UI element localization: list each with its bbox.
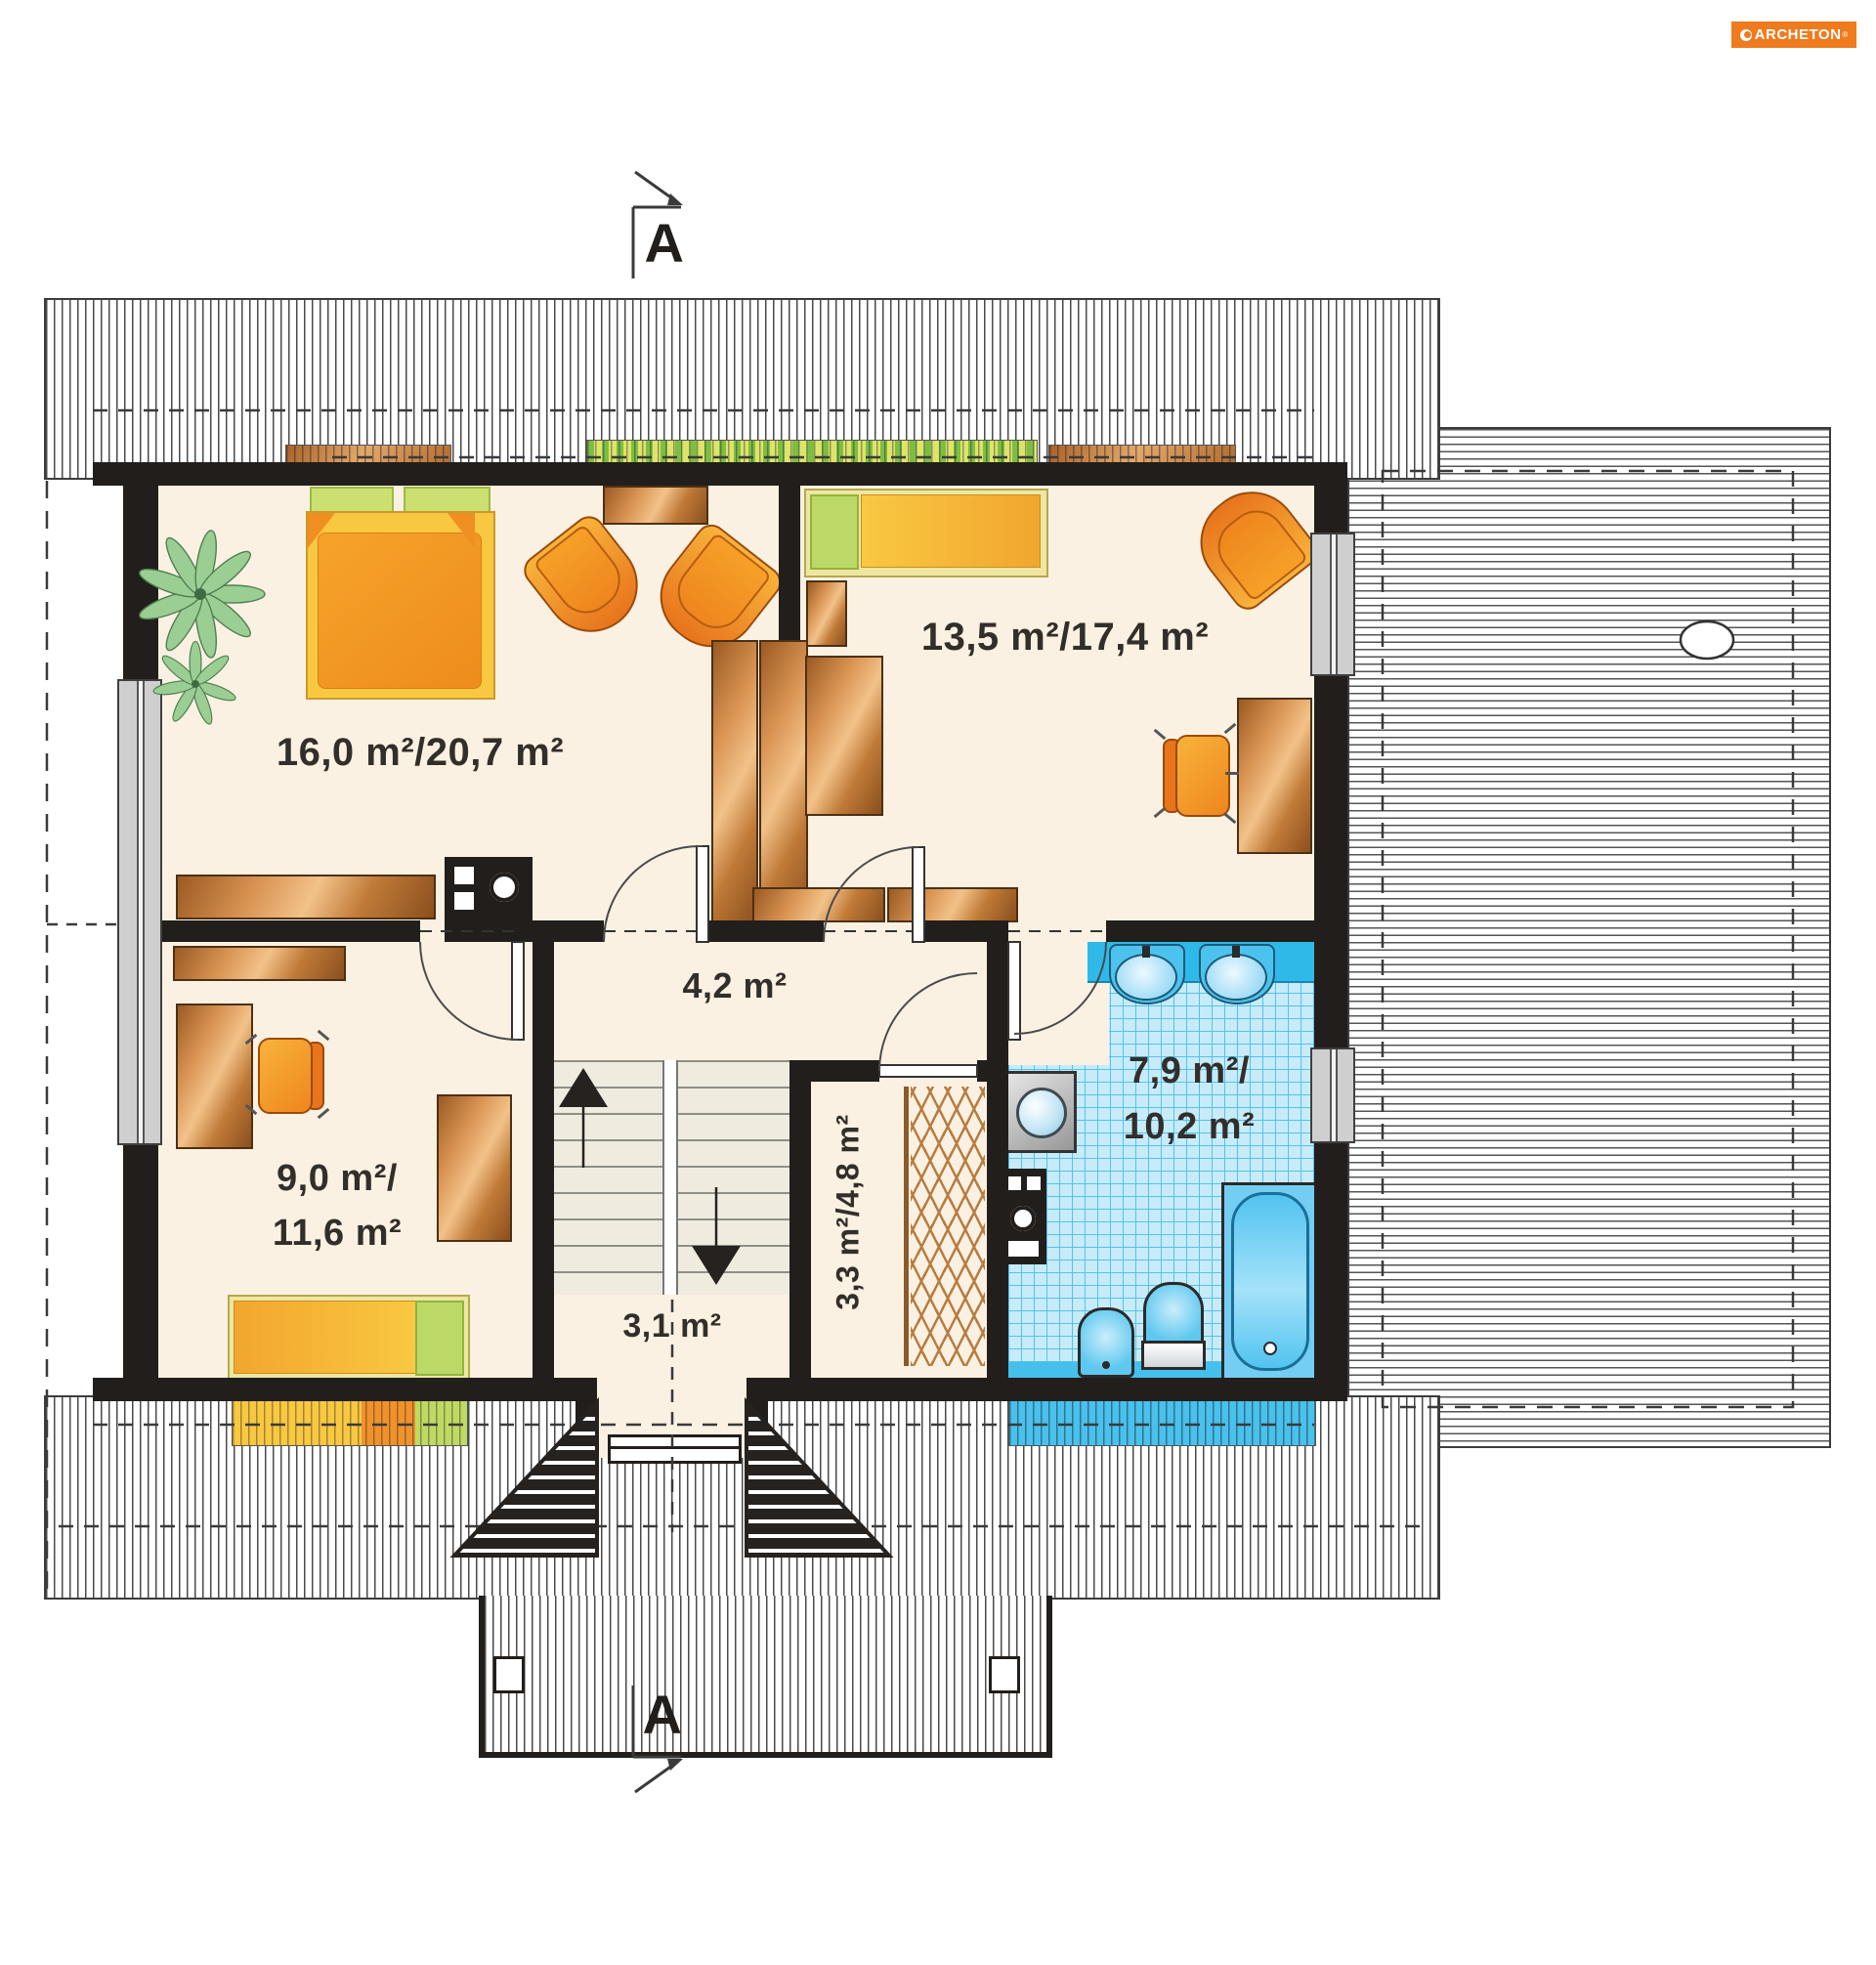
bidet-drain (1102, 1361, 1110, 1369)
shelf-large-bedroom (603, 486, 708, 525)
sink-right-basin (1205, 954, 1267, 1001)
area-label-bedroom-small-line2: 11,6 m² (234, 1206, 440, 1260)
archeton-logo-mark-icon (1740, 29, 1752, 41)
sink-left (1109, 944, 1185, 1004)
toilet-bowl (1143, 1282, 1204, 1346)
wall-closet-top-b (977, 1060, 987, 1082)
divider-cabinet-left (711, 640, 758, 924)
flue-vent-bar (1007, 1241, 1039, 1257)
closet-hangers (911, 1087, 985, 1366)
area-label-hall: 4,2 m² (637, 965, 832, 1006)
sideboard-right-bedroom-1 (752, 887, 885, 922)
window-left-wall (117, 679, 162, 1145)
area-label-bedroom-right: 13,5 m²/17,4 m² (870, 616, 1260, 660)
area-label-vestibule: 3,1 m² (575, 1307, 770, 1346)
shelf-small-bedroom (173, 946, 346, 981)
archeton-logo: ARCHETON ® (1731, 21, 1856, 48)
window-right-wall-bathroom (1310, 1047, 1355, 1143)
area-label-bathroom-line2: 10,2 m² (1087, 1099, 1292, 1155)
chimney-block (445, 857, 533, 942)
desk-chair-seat (258, 1038, 313, 1114)
roof-right-area (1347, 427, 1831, 1448)
sink-left-tap (1142, 946, 1150, 958)
eave-bathroom-strip (1008, 1399, 1316, 1446)
desk-chair-seat (1175, 735, 1230, 817)
archeton-logo-text: ARCHETON (1755, 26, 1842, 43)
desk-right-bedroom (1237, 698, 1312, 854)
dormer-chimney-left (493, 1656, 525, 1693)
wall-bottom-right (768, 1378, 1347, 1401)
archeton-logo-registered: ® (1842, 30, 1848, 39)
area-label-bedroom-large: 16,0 m²/20,7 m² (225, 731, 616, 775)
dormer-chimney-right (989, 1656, 1020, 1693)
archeton-logo-mark-inner (1744, 31, 1751, 38)
chimney-flue-circle (490, 873, 519, 902)
wall-bathroom-left (987, 942, 1008, 1378)
wall-vestibule-right (746, 1378, 768, 1458)
wall-mid-seg1 (158, 920, 420, 942)
washing-machine (1004, 1071, 1077, 1153)
chimney-flue-square-1 (454, 867, 474, 884)
bathroom-area (1008, 942, 1314, 1378)
single-bed-small-mattress (234, 1301, 417, 1374)
window-right-wall-bedroom (1310, 533, 1355, 676)
wall-closet-top-a (811, 1060, 879, 1082)
chimney-flue-square-2 (454, 892, 474, 910)
chair-wheel (1225, 772, 1239, 775)
wall-vestibule-left (576, 1378, 597, 1458)
wardrobe-small-bedroom (437, 1094, 512, 1242)
area-label-bedroom-small-line1: 9,0 m²/ (234, 1151, 440, 1206)
single-bed-right-pillow (810, 494, 859, 570)
sink-left-basin (1115, 954, 1177, 1001)
sideboard-large-bedroom (176, 875, 436, 919)
double-bed-blanket (318, 533, 482, 689)
sink-right (1199, 944, 1275, 1004)
wall-closet-left (789, 1060, 811, 1378)
flue-vent-square-2 (1027, 1176, 1041, 1190)
washing-machine-drum (1016, 1088, 1067, 1138)
section-letter-top: A (633, 211, 696, 275)
area-label-bathroom: 7,9 m²/ 10,2 m² (1087, 1044, 1292, 1155)
single-bed-small-pillow (415, 1301, 464, 1376)
bidet (1078, 1307, 1134, 1378)
flue-vent-square-1 (1007, 1176, 1021, 1190)
desk-small-bedroom (176, 1004, 253, 1149)
wall-top (93, 462, 1347, 486)
staircase-divider (662, 1060, 678, 1295)
sideboard-right-bedroom-2 (887, 887, 1018, 922)
toilet-tank (1141, 1341, 1206, 1370)
floor-plan-canvas: 16,0 m²/20,7 m² 13,5 m²/17,4 m² 4,2 m² 9… (0, 0, 1876, 1965)
bathtub (1221, 1182, 1319, 1381)
eave-bed-strip (232, 1399, 468, 1446)
desk-chair-right-bedroom (1163, 727, 1228, 821)
closet-hanging-rail (904, 1087, 909, 1366)
single-bed-right-mattress (861, 494, 1041, 568)
area-label-bathroom-line1: 7,9 m²/ (1087, 1044, 1292, 1099)
area-label-bedroom-small: 9,0 m²/ 11,6 m² (234, 1151, 440, 1260)
wall-hall-left (533, 942, 554, 1378)
wall-mid-seg4 (918, 920, 1008, 942)
section-letter-bottom: A (631, 1683, 694, 1746)
wardrobe-right-bedroom (805, 656, 883, 816)
area-label-closet: 3,3 m²/4,8 m² (831, 1095, 867, 1330)
wall-bottom-left (93, 1378, 576, 1401)
flue-vent-circle (1010, 1206, 1036, 1231)
nightstand-right-bedroom (806, 580, 847, 647)
vestibule-window-mullion (611, 1446, 739, 1449)
wall-mid-seg3 (703, 920, 824, 942)
desk-chair-small-bedroom (252, 1034, 324, 1116)
bathtub-drain (1263, 1342, 1277, 1355)
dormer-roof (479, 1596, 1052, 1758)
vestibule-window (608, 1434, 742, 1464)
divider-cabinet-right (759, 640, 808, 924)
sink-right-tap (1232, 946, 1240, 958)
wall-bedroom-divider (779, 486, 800, 640)
wall-mid-seg5 (1106, 920, 1314, 942)
